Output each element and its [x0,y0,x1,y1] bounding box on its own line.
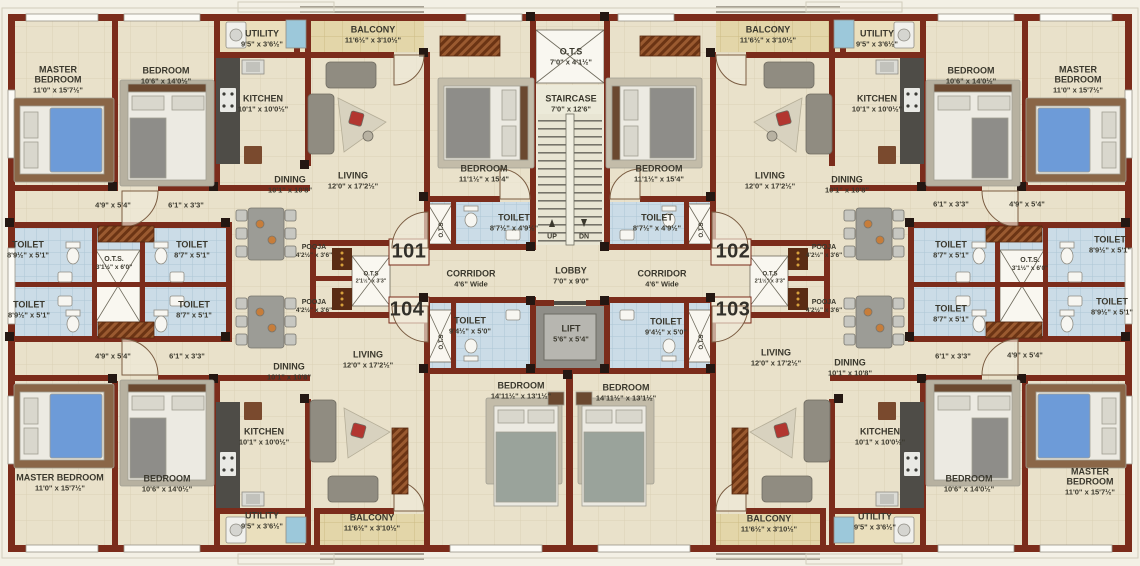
label-passage-102-b: 6'1" x 3'3" [933,199,969,208]
label-bedroom-101: BEDROOM10'6" x 14'0½" [141,66,191,85]
label-living-104: LIVING12'0" x 17'2½" [343,350,393,369]
label-ots-top: O.T.S7'0" x 4'1½" [550,47,592,66]
label-lift: LIFT5'6" x 5'4" [553,324,589,343]
label-toilet-103: TOILET9'4½" x 5'0" [645,317,687,336]
label-dining-101: DINING10'1" x 10'8" [268,175,312,194]
label-living-103: LIVING12'0" x 17'2½" [751,348,801,367]
label-pooja-104: POOJA4'2½" x 3'6" [296,299,332,315]
label-utility-102: UTILITY9'5" x 3'6½" [856,29,898,48]
label-staircase: STAIRCASE7'0" x 12'6" [545,94,596,113]
label-pooja-103: POOJA4'2½" x 3'6" [806,299,842,315]
label-bedroom-104: BEDROOM10'6" x 14'0½" [142,474,192,493]
label-master-bedroom-103: MASTER BEDROOM11'0" x 15'7½" [1061,467,1119,496]
label-balcony-101: BALCONY11'6½" x 3'10½" [345,25,401,44]
label-toilet-101: TOILET8'7½" x 4'9½" [490,213,538,232]
label-kitchen-102: KITCHEN10'1" x 10'0½" [852,94,902,113]
label-kitchen-104: KITCHEN10'1" x 10'0½" [239,427,289,446]
label-kitchen-101: KITCHEN10'1" x 10'0½" [238,94,288,113]
label-toilet-outer-bottom-right: TOILET8'9½" x 5'1" [1091,297,1133,316]
unit-badge-103: 103 [716,299,751,322]
ots-shaft-label: O.T.S [699,334,705,349]
label-dining-103: DINING10'1" x 10'8" [828,358,872,377]
label-ots-mid-left: O.T.S2'1½" x 3'3" [356,271,387,284]
label-corridor-right: CORRIDOR4'6" Wide [638,269,687,288]
label-passage-104-a: 4'9" x 5'4" [95,351,131,360]
label-bedroom-102: BEDROOM10'6" x 14'0½" [946,66,996,85]
label-master-bedroom-104: MASTER BEDROOM11'0" x 15'7½" [16,473,104,492]
label-dining-102: DINING10'1" x 10'8" [825,175,869,194]
label-bedroom2-101: BEDROOM11'1½" x 15'4" [459,164,509,183]
label-bedroom-103: BEDROOM10'6" x 14'0½" [944,474,994,493]
label-pooja-101: POOJA4'2½" x 3'6" [296,244,332,260]
label-lobby: LOBBY7'0" x 9'0" [553,266,589,285]
label-bedroom2-104: BEDROOM14'11½" x 13'1½" [491,381,551,400]
floor-plan: O.T.S O.T.S O.T.S O.T.S MASTER BEDROOM11… [0,0,1140,566]
label-living-102: LIVING12'0" x 17'2½" [745,171,795,190]
label-toilet-inner-bottom-left: TOILET8'7" x 5'1" [176,300,212,319]
label-toilet-outer-top-right: TOILET8'9½" x 5'1" [1089,235,1131,254]
ots-shaft-label: O.T.S [439,334,445,349]
label-toilet-102: TOILET8'7½" x 4'9½" [633,213,681,232]
label-passage-104-b: 6'1" x 3'3" [169,351,205,360]
label-utility-103: UTILITY9'5" x 3'6½" [854,512,896,531]
label-bedroom2-102: BEDROOM11'1½" x 15'4" [634,164,684,183]
stair-dn-label: DN [579,234,589,241]
unit-badge-101: 101 [392,241,427,264]
label-balcony-102: BALCONY11'6½" x 3'10½" [740,25,796,44]
label-bedroom2-103: BEDROOM14'11½" x 13'1½" [596,383,656,402]
label-dining-104: DINING10'1" x 10'8" [267,362,311,381]
label-utility-104: UTILITY9'5" x 3'6½" [241,511,283,530]
label-living-101: LIVING12'0" x 17'2½" [328,171,378,190]
label-toilet-outer-top-left: TOILET8'9½" x 5'1" [7,240,49,259]
unit-badge-104: 104 [390,299,425,322]
label-passage-101-a: 4'9" x 5'4" [95,200,131,209]
label-toilet-inner-bottom-right: TOILET8'7" x 5'1" [933,304,969,323]
label-toilet-outer-bottom-left: TOILET8'9½" x 5'1" [8,300,50,319]
label-master-bedroom-101: MASTER BEDROOM11'0" x 15'7½" [29,65,87,94]
unit-badge-102: 102 [716,241,751,264]
label-master-bedroom-102: MASTER BEDROOM11'0" x 15'7½" [1049,65,1107,94]
ots-shaft-label: O.T.S [439,222,445,237]
label-balcony-103: BALCONY11'6½" x 3'10½" [741,514,797,533]
label-kitchen-103: KITCHEN10'1" x 10'0½" [855,427,905,446]
label-passage-103-a: 4'9" x 5'4" [1007,350,1043,359]
label-passage-102-a: 4'9" x 5'4" [1009,199,1045,208]
staircase [538,114,602,245]
ots-shaft-label: O.T.S [699,222,705,237]
label-utility-101: UTILITY9'5" x 3'6½" [241,29,283,48]
label-passage-101-b: 6'1" x 3'3" [168,200,204,209]
label-toilet-inner-top-right: TOILET8'7" x 5'1" [933,240,969,259]
label-pooja-102: POOJA4'2½" x 3'6" [806,244,842,260]
label-ots-right: O.T.S.3'1½" x 6'0" [1012,257,1048,273]
label-toilet-104: TOILET9'4½" x 5'0" [449,316,491,335]
label-balcony-104: BALCONY11'6½" x 3'10½" [344,513,400,532]
stair-up-label: UP [547,234,557,241]
label-toilet-inner-top-left: TOILET8'7" x 5'1" [174,240,210,259]
label-corridor-left: CORRIDOR4'6" Wide [447,269,496,288]
label-ots-mid-right: O.T.S2'1½" x 3'3" [755,271,786,284]
label-passage-103-b: 6'1" x 3'3" [935,351,971,360]
label-ots-left: O.T.S.3'1½" x 6'0" [96,256,132,272]
